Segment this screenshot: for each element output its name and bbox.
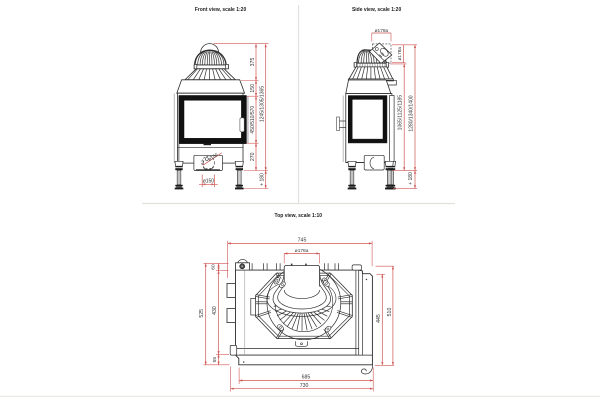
svg-text:+ 180: + 180: [408, 172, 414, 185]
svg-text:375: 375: [250, 58, 256, 67]
svg-text:270: 270: [250, 152, 256, 161]
svg-text:450/510/570: 450/510/570: [250, 106, 256, 134]
svg-text:ø178a: ø178a: [375, 28, 389, 34]
svg-text:510: 510: [387, 308, 393, 317]
svg-text:Front view, scale 1:20: Front view, scale 1:20: [195, 7, 247, 13]
svg-text:430: 430: [212, 306, 218, 315]
svg-text:Side view, scale 1:20: Side view, scale 1:20: [352, 7, 402, 13]
svg-text:745: 745: [298, 237, 307, 243]
svg-text:+ 180: + 180: [259, 173, 265, 186]
svg-text:730: 730: [300, 383, 309, 389]
svg-text:150: 150: [250, 84, 256, 93]
svg-text:ø178a: ø178a: [295, 248, 309, 254]
svg-text:445: 445: [376, 314, 382, 323]
svg-text:1245/1305/1365: 1245/1305/1365: [259, 86, 265, 122]
svg-text:1280/1340/1400: 1280/1340/1400: [408, 95, 414, 131]
svg-text:525: 525: [199, 309, 205, 318]
svg-text:685: 685: [302, 375, 311, 381]
svg-text:ø178a: ø178a: [397, 47, 403, 61]
svg-text:60: 60: [210, 264, 216, 270]
svg-text:1065/1125/1185: 1065/1125/1185: [398, 95, 404, 131]
svg-text:ø150: ø150: [203, 178, 215, 184]
svg-text:55: 55: [212, 357, 218, 363]
svg-text:Top view, scale 1:10: Top view, scale 1:10: [275, 213, 323, 219]
